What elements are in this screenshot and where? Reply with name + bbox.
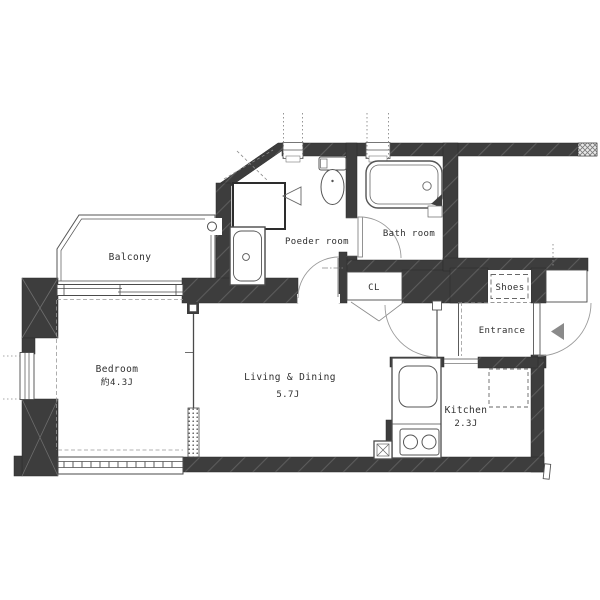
label-bath-room: Bath room [383, 229, 435, 239]
wall-bedroom-left-neck [22, 338, 35, 354]
hall-ld-door [385, 301, 442, 357]
label-bedroom-size: 約4.3J [101, 376, 134, 388]
wall-top [282, 143, 597, 156]
label-closet: CL [368, 283, 380, 293]
floor-plan-drawing: Balcony Bedroom 約4.3J Living & Dining 5.… [0, 0, 600, 600]
front-door-leaf [534, 303, 541, 355]
stove [400, 429, 439, 455]
sliding-partition-stack [188, 408, 199, 457]
label-living-dining-size: 5.7J [276, 390, 299, 400]
wall-bath-right [443, 143, 458, 274]
label-bedroom: Bedroom [96, 364, 139, 375]
balcony-area [57, 215, 222, 281]
wall-kitchen-right [531, 358, 544, 472]
meter-box [546, 270, 587, 302]
label-kitchen: Kitchen [445, 405, 488, 416]
balcony-railing-outer [57, 215, 215, 281]
laundry-space-box [233, 183, 285, 229]
front-door-swing-arc [538, 303, 591, 356]
pipe-mark [543, 464, 551, 480]
bedroom-partition [185, 302, 199, 457]
wall-bottom [183, 457, 544, 472]
washbasin [230, 227, 265, 285]
balcony-railing-inner [61, 219, 211, 281]
door-leaf [358, 217, 363, 257]
wall-closet-left [339, 252, 347, 303]
wall-kitchen-hall [478, 357, 538, 368]
label-entrance: Entrance [479, 326, 526, 336]
door-swing-arc [298, 257, 339, 298]
front-door [534, 303, 592, 356]
kitchen-counter [392, 358, 441, 458]
label-shoes: Shoes [495, 283, 524, 293]
bathtub [366, 161, 442, 217]
label-powder-room: Poeder room [285, 237, 349, 247]
wall-shoes-right [531, 268, 546, 303]
bath-counter [428, 206, 442, 217]
bath-room-area [346, 161, 442, 258]
toilet [319, 157, 346, 205]
floor-plan-canvas: Balcony Bedroom 約4.3J Living & Dining 5.… [0, 0, 600, 600]
closet-area [347, 272, 404, 321]
wall-hatched-end-block [578, 143, 597, 156]
walls [14, 143, 597, 476]
bedroom-bottom-window [58, 450, 183, 474]
powder-room-door [297, 257, 340, 303]
wall-diagonal [216, 143, 293, 186]
door-hinge-block [433, 301, 442, 310]
door-swing-arc [385, 305, 437, 357]
label-balcony: Balcony [109, 252, 152, 263]
entrance-direction-triangle [551, 323, 564, 340]
duct-box [374, 441, 392, 459]
bedroom-left-window [3, 353, 34, 400]
wall-bottom-left-corner [14, 456, 22, 476]
refrigerator-space [489, 369, 528, 407]
bedroom-balcony-window [57, 281, 183, 300]
label-kitchen-size: 2.3J [454, 419, 477, 429]
label-living-dining: Living & Dining [244, 372, 336, 383]
closet-bifold-marks [351, 302, 404, 321]
wall-shoes-left [450, 268, 488, 303]
wall-powder-bath-divider-upper [346, 143, 357, 218]
